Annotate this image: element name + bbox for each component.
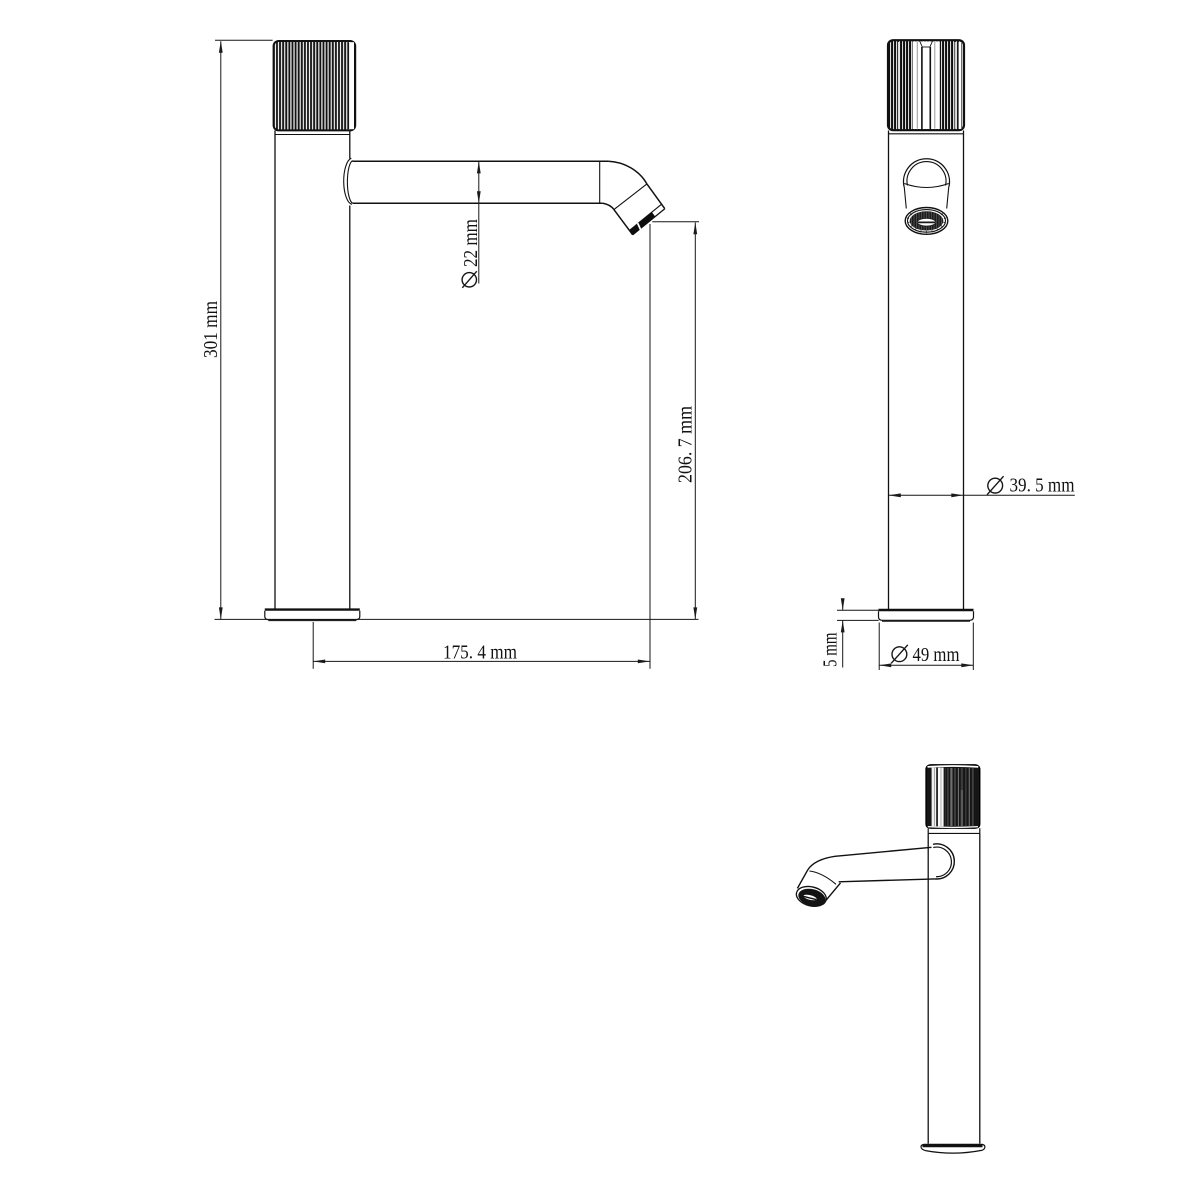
svg-text:206. 7 mm: 206. 7 mm	[675, 406, 697, 483]
svg-text:301 mm: 301 mm	[200, 301, 222, 358]
svg-text:39. 5 mm: 39. 5 mm	[1010, 474, 1075, 496]
svg-text:5 mm: 5 mm	[819, 632, 841, 667]
svg-text:22 mm: 22 mm	[460, 219, 482, 267]
svg-text:49 mm: 49 mm	[913, 644, 960, 666]
svg-text:175. 4 mm: 175. 4 mm	[443, 642, 517, 664]
